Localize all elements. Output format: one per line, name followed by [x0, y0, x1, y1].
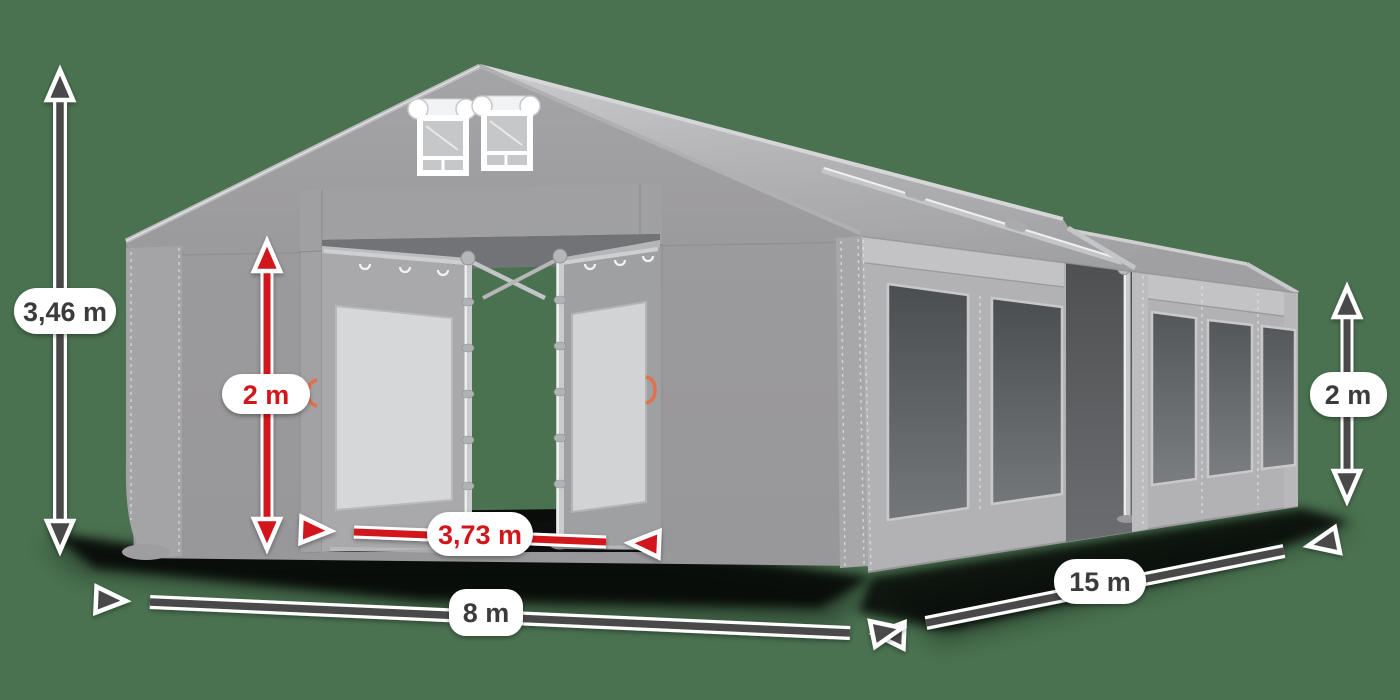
side-window: [1208, 320, 1252, 477]
dimension-label-total-height: 3,46 m: [14, 288, 116, 334]
entrance-height-value: 2 m: [243, 380, 290, 410]
dimension-label-side-wall-height: 2 m: [1310, 372, 1387, 417]
tent-product-illustration: 3,46 m 2 m 3,73 m 8 m: [0, 0, 1400, 700]
gable-vent-right: [472, 96, 540, 168]
side-wall-height-value: 2 m: [1325, 380, 1372, 410]
gable-vent-left: [408, 99, 476, 173]
side-window: [1152, 312, 1196, 485]
side-open-bay: [1066, 263, 1132, 542]
entrance-right-flap: [560, 240, 660, 550]
dimension-label-front-width: 8 m: [449, 589, 523, 636]
tent: [122, 66, 1298, 572]
entrance-opening: [308, 234, 660, 554]
front-left-corner-post: [126, 246, 182, 558]
tent-product-scene: 3,46 m 2 m 3,73 m 8 m: [0, 0, 1400, 700]
front-width-value: 8 m: [463, 598, 510, 628]
side-window: [888, 284, 968, 520]
side-length-value: 15 m: [1069, 567, 1131, 597]
skirt-fold: [122, 544, 170, 560]
side-window: [992, 298, 1062, 504]
flap-window: [336, 306, 452, 510]
bay-divider-strip: [1132, 272, 1148, 532]
entrance-left-flap: [322, 246, 468, 552]
side-window: [1262, 326, 1295, 469]
dimension-label-side-length: 15 m: [1054, 559, 1146, 604]
total-height-value: 3,46 m: [23, 297, 107, 327]
dimension-label-entrance-width: 3,73 m: [427, 512, 533, 556]
flap-window: [572, 302, 646, 512]
dimension-label-entrance-height: 2 m: [222, 374, 310, 414]
entrance-width-value: 3,73 m: [438, 520, 522, 550]
